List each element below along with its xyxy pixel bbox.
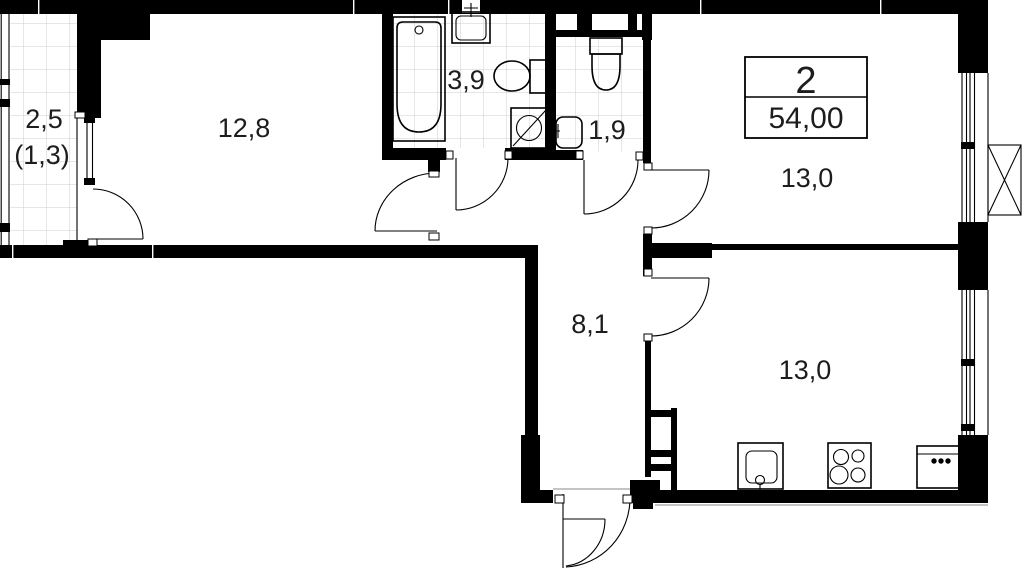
stove	[828, 443, 871, 488]
wall-right-upper	[958, 0, 988, 73]
wall-joint	[880, 0, 881, 14]
bedroom-area-label: 13,0	[781, 163, 834, 193]
kitchen-fixtures	[738, 443, 960, 492]
title-room-count: 2	[795, 60, 816, 102]
wall-balcony-pier	[77, 13, 101, 118]
ac-basket	[988, 145, 1021, 215]
bedroom-window	[961, 73, 988, 222]
wall-joint	[353, 0, 354, 14]
entrance-door	[553, 489, 632, 568]
living-room-door	[375, 171, 439, 240]
wall-wc-right	[643, 40, 651, 163]
wall-right-middle	[958, 222, 988, 290]
wall-bathroom-bottom-left	[382, 148, 446, 160]
balcony-door	[88, 189, 143, 246]
wall-joint	[700, 0, 701, 14]
wall-joint	[12, 245, 13, 258]
kitchen-sink	[738, 443, 783, 492]
bathroom-door	[446, 151, 512, 210]
duct-ladder-rung-2	[650, 450, 677, 457]
duct-ladder-rung-3	[650, 464, 677, 471]
title-total-area: 54,00	[768, 102, 843, 135]
doors	[88, 151, 709, 568]
duct-shelf	[545, 30, 645, 37]
balcony-reduced-area-label: (1,3)	[14, 140, 70, 170]
duct-bar-right	[628, 13, 637, 31]
wall-wc-right-top	[642, 13, 652, 40]
wall-joint	[38, 0, 39, 14]
wall-room-divider	[712, 244, 960, 250]
wall-joint	[448, 0, 449, 14]
wall-hallway-left-base	[521, 435, 540, 503]
balcony-glazing	[0, 14, 10, 245]
wc-area-label: 1,9	[588, 115, 626, 145]
wall-under-balcony-door	[63, 240, 88, 248]
wall-bottom-kitchen	[655, 490, 988, 503]
duct-ladder-rung-1	[650, 410, 677, 417]
hallway-area-label: 8,1	[571, 309, 609, 339]
wall-bathroom-left	[382, 13, 393, 150]
balcony-door-window	[75, 112, 95, 247]
wall-room-divider-stub	[643, 243, 712, 258]
wall-joint	[152, 245, 153, 258]
duct-bar-middle	[577, 13, 592, 31]
wall-living-door-stub	[428, 160, 440, 172]
bathroom-area-label: 3,9	[447, 65, 485, 95]
kitchen-area-label: 13,0	[779, 355, 832, 385]
title-block: 2 54,00	[745, 57, 867, 138]
bedroom-door	[644, 163, 709, 234]
counter-appliance	[917, 446, 960, 488]
wall-entrance-step	[633, 503, 653, 509]
floor-plan-page: 2 54,00 2,5 (1,3) 12,8 3,9 1,9 13,0 8,1 …	[0, 0, 1023, 571]
kitchen-door	[644, 269, 709, 341]
wc-door	[576, 151, 643, 214]
living-room-area-label: 12,8	[218, 113, 271, 143]
floor-plan: 2 54,00 2,5 (1,3) 12,8 3,9 1,9 13,0 8,1 …	[0, 0, 1023, 571]
kitchen-window	[961, 290, 988, 435]
balcony-area-label: 2,5	[25, 104, 63, 134]
wall-pier-top	[100, 0, 150, 40]
wall-entrance-left-stub	[538, 490, 553, 503]
duct-ladder-rail	[671, 408, 677, 490]
